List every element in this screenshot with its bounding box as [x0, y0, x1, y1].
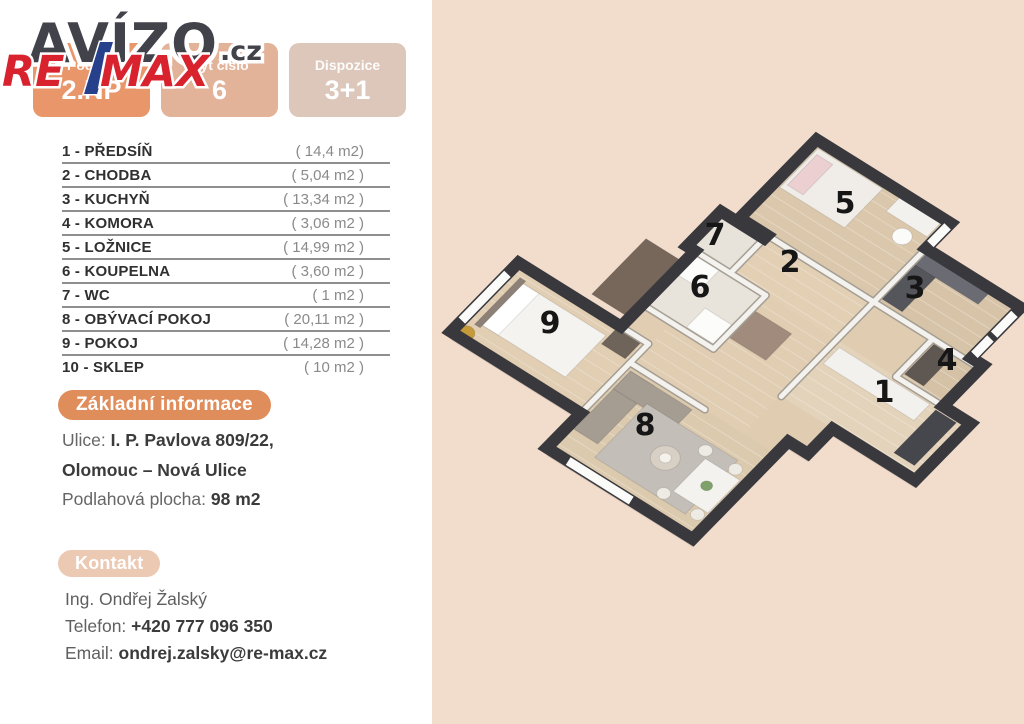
room-row: 5 - LOŽNICE( 14,99 m2 ): [62, 236, 390, 260]
street-value-2: Olomouc – Nová Ulice: [62, 460, 247, 480]
room-row: 10 - SKLEP( 10 m2 ): [62, 356, 390, 378]
room-area: ( 3,60 m2 ): [291, 263, 390, 280]
room-number-label: 4: [937, 343, 958, 378]
contact-badge: Kontakt: [58, 550, 160, 577]
room-area: ( 14,28 m2 ): [283, 335, 390, 352]
room-number-label: 5: [835, 186, 856, 221]
room-number-label: 2: [780, 245, 801, 280]
phone-line: Telefon: +420 777 096 350: [65, 613, 327, 640]
room-row: 3 - KUCHYŇ( 13,34 m2 ): [62, 188, 390, 212]
room-name: 9 - POKOJ: [62, 335, 138, 352]
furniture: [657, 488, 671, 499]
floor-plan: 123456789: [432, 0, 1024, 724]
address-block: Ulice: I. P. Pavlova 809/22, Olomouc – N…: [62, 426, 274, 515]
phone-value: +420 777 096 350: [131, 616, 273, 636]
room-name: 2 - CHODBA: [62, 167, 152, 184]
room-name: 6 - KOUPELNA: [62, 263, 170, 280]
furniture: [690, 509, 704, 520]
room-number-label: 9: [540, 306, 561, 341]
room-name: 3 - KUCHYŇ: [62, 191, 150, 208]
phone-label: Telefon:: [65, 616, 126, 636]
email-value: ondrej.zalsky@re-max.cz: [119, 643, 328, 663]
street-line-2: Olomouc – Nová Ulice: [62, 456, 274, 486]
room-name: 8 - OBÝVACÍ POKOJ: [62, 311, 211, 328]
furniture: [701, 481, 713, 491]
room-row: 6 - KOUPELNA( 3,60 m2 ): [62, 260, 390, 284]
room-row: 2 - CHODBA( 5,04 m2 ): [62, 164, 390, 188]
street-line: Ulice: I. P. Pavlova 809/22,: [62, 426, 274, 456]
remax-logo-max: MAX: [100, 47, 210, 97]
room-area: ( 14,4 m2): [296, 143, 390, 160]
room-row: 9 - POKOJ( 14,28 m2 ): [62, 332, 390, 356]
room-area: ( 3,06 m2 ): [291, 215, 390, 232]
floorplan-panel: 123456789: [432, 0, 1024, 724]
room-name: 7 - WC: [62, 287, 110, 304]
remax-logo: RE MAX: [0, 40, 210, 102]
email-line: Email: ondrej.zalsky@re-max.cz: [65, 640, 327, 667]
room-area: ( 13,34 m2 ): [283, 191, 390, 208]
room-number-label: 6: [690, 270, 711, 305]
room-row: 8 - OBÝVACÍ POKOJ( 20,11 m2 ): [62, 308, 390, 332]
remax-logo-re: RE: [2, 47, 64, 97]
room-name: 4 - KOMORA: [62, 215, 154, 232]
room-row: 7 - WC( 1 m2 ): [62, 284, 390, 308]
room-area: ( 20,11 m2 ): [284, 311, 390, 328]
room-area: ( 14,99 m2 ): [283, 239, 390, 256]
room-name: 1 - PŘEDSÍŇ: [62, 143, 153, 160]
furniture: [698, 445, 712, 456]
room-table: 1 - PŘEDSÍŇ( 14,4 m2)2 - CHODBA( 5,04 m2…: [62, 140, 390, 378]
room-area: ( 1 m2 ): [312, 287, 390, 304]
contact-block: Ing. Ondřej Žalský Telefon: +420 777 096…: [65, 586, 327, 667]
room-name: 5 - LOŽNICE: [62, 239, 152, 256]
room-number-label: 7: [705, 218, 726, 253]
basic-info-badge: Základní informace: [58, 390, 271, 420]
floor-area-value: 98 m2: [211, 489, 261, 509]
floor-area-label: Podlahová plocha:: [62, 489, 206, 509]
floor-area-line: Podlahová plocha: 98 m2: [62, 485, 274, 515]
room-number-label: 1: [874, 375, 895, 410]
badge-layout-value: 3+1: [325, 74, 371, 106]
room-area: ( 10 m2 ): [304, 359, 390, 376]
email-label: Email:: [65, 643, 114, 663]
furniture: [728, 464, 742, 475]
street-value: I. P. Pavlova 809/22,: [111, 430, 274, 450]
room-number-label: 8: [635, 408, 656, 443]
avizo-logo-suffix: .cz: [220, 36, 262, 67]
room-area: ( 5,04 m2 ): [291, 167, 390, 184]
badge-layout-label: Dispozice: [315, 56, 380, 74]
furniture: [659, 453, 671, 463]
room-number-label: 3: [905, 271, 926, 306]
info-panel: Podlaží 2.NP Byt číslo 6 Dispozice 3+1 A…: [0, 0, 432, 724]
furniture: [892, 228, 912, 244]
badge-layout: Dispozice 3+1: [289, 43, 406, 117]
room-row: 4 - KOMORA( 3,06 m2 ): [62, 212, 390, 236]
agent-name: Ing. Ondřej Žalský: [65, 586, 327, 613]
room-name: 10 - SKLEP: [62, 359, 144, 376]
street-label: Ulice:: [62, 430, 106, 450]
room-row: 1 - PŘEDSÍŇ( 14,4 m2): [62, 140, 390, 164]
